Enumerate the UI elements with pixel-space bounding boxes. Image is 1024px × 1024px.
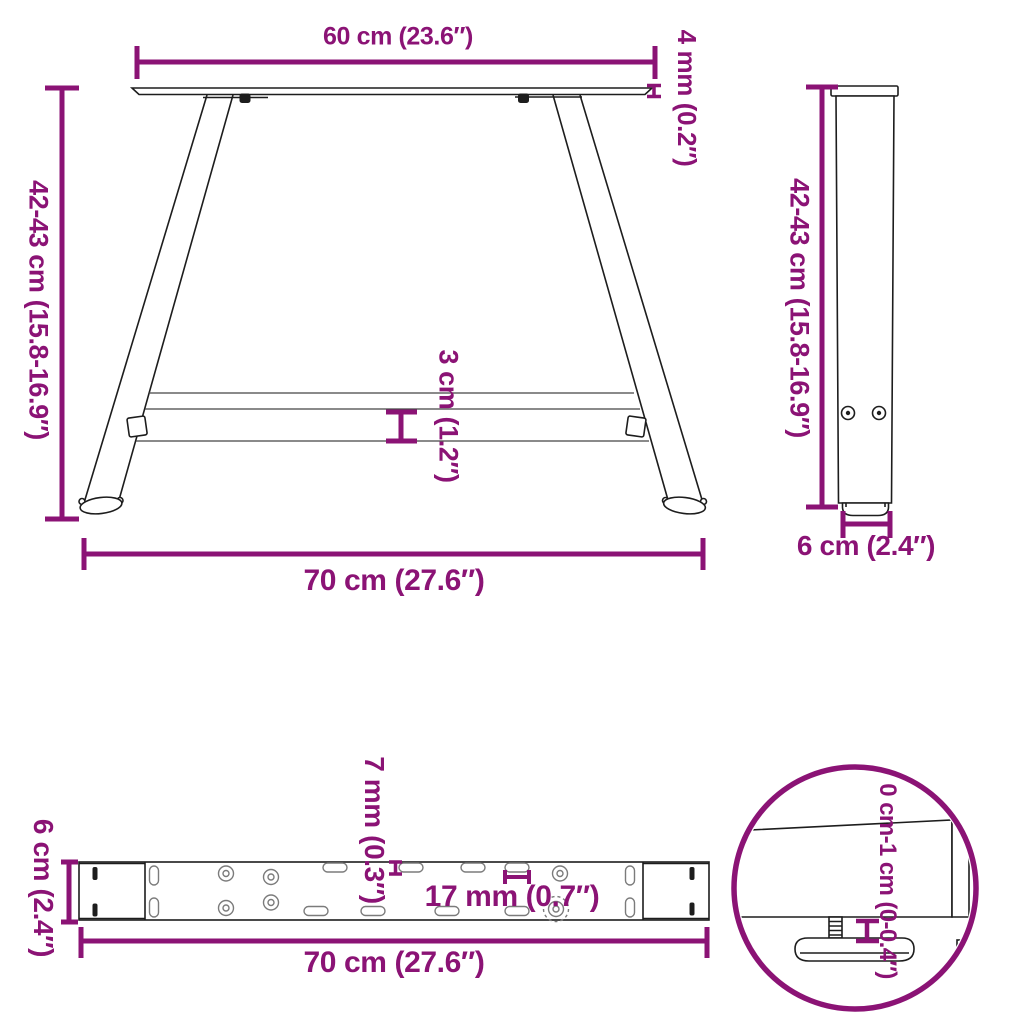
side-view-lineart — [831, 86, 898, 516]
front-view-lineart — [79, 88, 707, 516]
front-top-width-label: 60 cm (23.6″) — [323, 25, 473, 50]
front-crossbar-height-label: 3 cm (1.2″) — [435, 349, 462, 482]
side-foot-depth-label: 6 cm (2.4″) — [797, 532, 935, 560]
diagram-page: 60 cm (23.6″) 4 mm (0.2″) 42-43 cm (15.8… — [0, 0, 1024, 1024]
bottom-hole-diameter-label: 17 mm (0.7″) — [425, 882, 600, 912]
side-height-label: 42-43 cm (15.8-16.9″) — [786, 178, 813, 438]
detail-adjustment-range-label: 0 cm-1 cm (0-0.4″) — [875, 783, 899, 978]
dim-bottom-bar-depth — [61, 862, 78, 922]
detail-view-lineart — [730, 767, 976, 1009]
front-plate-thickness-label: 4 mm (0.2″) — [674, 30, 700, 167]
dim-front-top-width — [137, 46, 655, 79]
front-height-label: 42-43 cm (15.8-16.9″) — [25, 180, 52, 440]
bottom-slot-height-label: 7 mm (0.3″) — [360, 756, 388, 904]
bottom-bar-length-label: 70 cm (27.6″) — [304, 948, 485, 978]
front-base-width-label: 70 cm (27.6″) — [304, 566, 485, 596]
technical-drawing — [0, 0, 1024, 1024]
dim-front-crossbar-height — [386, 412, 417, 441]
bottom-bar-depth-label: 6 cm (2.4″) — [29, 819, 57, 957]
